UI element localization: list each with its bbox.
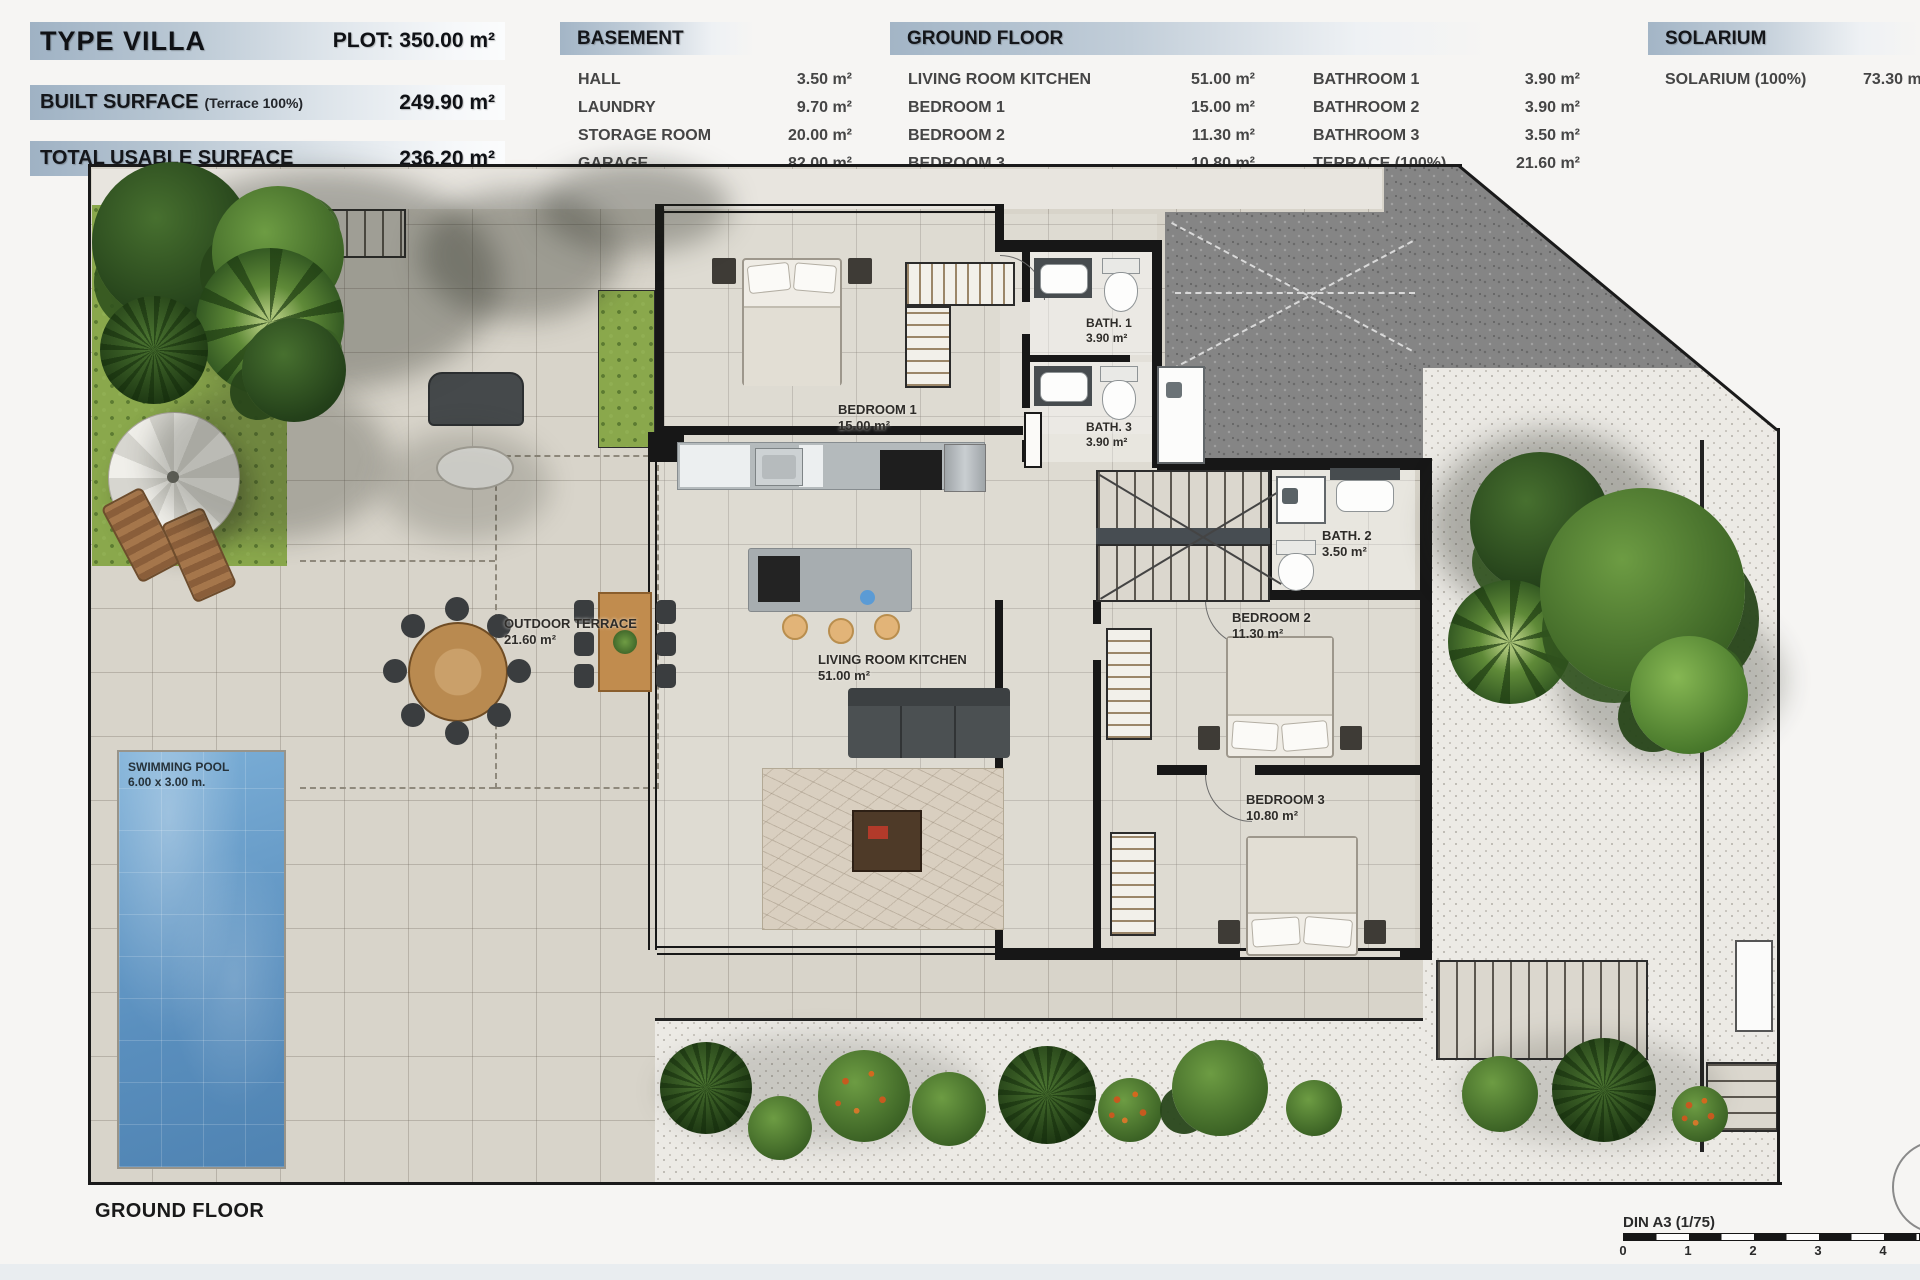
table-row: HALL3.50 m²: [578, 68, 852, 92]
page-bottom-strip: [0, 1264, 1920, 1280]
room-name: OUTDOOR TERRACE: [504, 616, 637, 632]
bush: [1172, 1040, 1268, 1136]
room-name: BEDROOM 2: [1232, 610, 1311, 626]
bush: [998, 1046, 1096, 1144]
dining-chair: [574, 664, 594, 688]
row-label: HALL: [578, 71, 621, 89]
pillow: [1251, 916, 1301, 947]
built-surface-labels: BUILT SURFACE(Terrace 100%): [40, 91, 303, 114]
row-value: 3.90 m²: [1525, 99, 1580, 117]
flowering-bush: [1098, 1078, 1162, 1142]
plan-sheet: { "header": { "type_villa": { "label": "…: [0, 0, 1920, 1280]
bush: [748, 1096, 812, 1160]
scale-tick: 4: [1875, 1243, 1891, 1258]
built-surface-value: 249.90 m²: [399, 91, 495, 115]
bush: [1462, 1056, 1538, 1132]
bar-stool: [782, 614, 808, 640]
solarium-table-header: SOLARIUM: [1648, 22, 1920, 55]
type-villa-bar: TYPE VILLA PLOT: 350.00 m²: [30, 22, 505, 60]
dashed-line: [300, 560, 495, 562]
room-name: BATH. 3: [1086, 420, 1132, 435]
cooktop: [880, 450, 942, 490]
toilet-bowl: [1102, 380, 1136, 420]
bush: [912, 1072, 986, 1146]
staircase-landing: [1096, 528, 1270, 544]
dining-chair: [656, 664, 676, 688]
hedge: [598, 290, 655, 448]
sink-basin: [1040, 372, 1088, 402]
built-surface-label: BUILT SURFACE: [40, 91, 199, 113]
room-area: 11.30 m²: [1232, 626, 1311, 642]
ground-floor-table-header: GROUND FLOOR: [890, 22, 1490, 55]
scale-tick: 3: [1810, 1243, 1826, 1258]
plot-boundary: [88, 1182, 1782, 1185]
pillow: [1231, 720, 1279, 751]
tree: [242, 318, 346, 422]
room-label-bath2: BATH. 23.50 m²: [1322, 528, 1372, 561]
row-value: 15.00 m²: [1191, 99, 1255, 117]
row-value: 11.30 m²: [1192, 127, 1255, 145]
wall: [1157, 765, 1207, 775]
patio-chair: [401, 703, 425, 727]
bed-blanket: [1228, 638, 1332, 716]
room-label-outdoor-terrace: OUTDOOR TERRACE21.60 m²: [504, 616, 637, 649]
room-label-bedroom1: BEDROOM 115.00 m²: [838, 402, 917, 435]
window-glazing: [648, 460, 657, 950]
basement-title: BASEMENT: [577, 28, 684, 50]
wall: [1255, 765, 1420, 775]
room-name: BEDROOM 1: [838, 402, 917, 418]
row-label: LIVING ROOM KITCHEN: [908, 71, 1091, 89]
built-surface-note: (Terrace 100%): [205, 95, 304, 111]
room-name: BEDROOM 3: [1246, 792, 1325, 808]
north-indicator-arc: [1892, 1140, 1920, 1234]
sink-basin: [1336, 480, 1394, 512]
coffee-table: [852, 810, 922, 872]
tree-shadow: [380, 430, 550, 540]
shower: [1157, 366, 1205, 464]
room-name: LIVING ROOM KITCHEN: [818, 652, 967, 668]
plot-boundary: [88, 164, 1462, 167]
pine-tree: [100, 296, 208, 404]
wall: [1093, 660, 1101, 948]
wall: [1022, 334, 1030, 408]
scale-tick: 1: [1680, 1243, 1696, 1258]
tree-shadow: [540, 162, 730, 252]
table-row: BEDROOM 211.30 m²: [908, 124, 1255, 148]
row-value: 21.60 m²: [1516, 155, 1580, 173]
sink-basin: [1040, 264, 1088, 294]
room-label-bedroom2: BEDROOM 211.30 m²: [1232, 610, 1311, 643]
table-row: BEDROOM 115.00 m²: [908, 96, 1255, 120]
room-name: SWIMMING POOL: [128, 760, 229, 775]
row-label: BEDROOM 1: [908, 99, 1005, 117]
sink-bowl: [762, 455, 796, 479]
room-name: BATH. 2: [1322, 528, 1372, 544]
dashed-line: [300, 787, 495, 789]
table-row: SOLARIUM (100%)73.30 m²: [1665, 68, 1920, 92]
nightstand: [1340, 726, 1362, 750]
basement-table-header: BASEMENT: [560, 22, 755, 55]
sofa-seat: [848, 706, 1010, 758]
fridge: [944, 444, 986, 492]
row-label: BEDROOM 2: [908, 127, 1005, 145]
row-label: STORAGE ROOM: [578, 127, 711, 145]
row-label: LAUNDRY: [578, 99, 656, 117]
driveway-wedge: [1384, 166, 1704, 370]
driveway-marking: [1175, 292, 1415, 294]
walkway-edge: [655, 1018, 1423, 1021]
sofa-back: [848, 688, 1010, 706]
solarium-title: SOLARIUM: [1665, 28, 1766, 50]
dining-chair: [656, 632, 676, 656]
table-row: STORAGE ROOM20.00 m²: [578, 124, 852, 148]
island-hob: [758, 556, 800, 602]
row-label: BATHROOM 3: [1313, 127, 1419, 145]
patio-chair: [487, 703, 511, 727]
plot-value: PLOT: 350.00 m²: [333, 29, 495, 53]
scale-label: DIN A3 (1/75): [1623, 1214, 1715, 1231]
nightstand: [1364, 920, 1386, 944]
row-value: 3.90 m²: [1525, 71, 1580, 89]
bed-blanket: [744, 306, 840, 386]
patio-chair: [383, 659, 407, 683]
row-value: 51.00 m²: [1191, 71, 1255, 89]
flowering-bush: [1672, 1086, 1728, 1142]
shower-head: [1166, 382, 1182, 398]
shower-head: [1282, 488, 1298, 504]
room-label-pool: SWIMMING POOL6.00 x 3.00 m.: [128, 760, 229, 790]
ac-unit: [1735, 940, 1773, 1032]
row-label: BATHROOM 1: [1313, 71, 1419, 89]
wardrobe: [1110, 832, 1156, 936]
scale-tick: 2: [1745, 1243, 1761, 1258]
wall: [1000, 240, 1162, 252]
bar-stool: [828, 618, 854, 644]
nightstand: [712, 258, 736, 284]
pillow: [1281, 720, 1329, 752]
room-area: 3.50 m²: [1322, 544, 1372, 560]
room-label-bath1: BATH. 13.90 m²: [1086, 316, 1132, 346]
sheet-title: GROUND FLOOR: [95, 1200, 264, 1223]
nightstand: [848, 258, 872, 284]
bed-blanket: [1248, 838, 1356, 914]
room-area: 3.90 m²: [1086, 435, 1132, 450]
door-leaf: [1024, 412, 1042, 468]
room-area: 51.00 m²: [818, 668, 967, 684]
outdoor-loveseat: [428, 372, 524, 426]
plot-boundary: [1777, 428, 1780, 1185]
room-label-living: LIVING ROOM KITCHEN51.00 m²: [818, 652, 967, 685]
ground-floor-title: GROUND FLOOR: [907, 28, 1063, 50]
bush: [1286, 1080, 1342, 1136]
row-label: BATHROOM 2: [1313, 99, 1419, 117]
pillow: [1303, 916, 1353, 948]
wall: [1255, 590, 1420, 600]
flowering-bush: [818, 1050, 910, 1142]
bush: [660, 1042, 752, 1134]
staircase-lower-flight: [1096, 544, 1270, 602]
room-area: 3.90 m²: [1086, 331, 1132, 346]
nightstand: [1218, 920, 1240, 944]
toilet-bowl: [1104, 272, 1138, 312]
row-label: SOLARIUM (100%): [1665, 71, 1806, 89]
table-row: BATHROOM 23.90 m²: [1313, 96, 1580, 120]
room-area: 21.60 m²: [504, 632, 637, 648]
coffee-table-books: [868, 826, 888, 839]
staircase-upper-flight: [1096, 470, 1270, 530]
bath-vanity: [1330, 468, 1400, 480]
wall: [1093, 600, 1101, 624]
room-label-bath3: BATH. 33.90 m²: [1086, 420, 1132, 450]
room-name: BATH. 1: [1086, 316, 1132, 331]
table-row: BATHROOM 13.90 m²: [1313, 68, 1580, 92]
wardrobe: [905, 262, 1015, 306]
room-label-bedroom3: BEDROOM 310.80 m²: [1246, 792, 1325, 825]
dining-chair: [656, 600, 676, 624]
wardrobe: [905, 306, 951, 388]
type-villa-label: TYPE VILLA: [40, 26, 206, 57]
built-surface-bar: BUILT SURFACE(Terrace 100%) 249.90 m²: [30, 85, 505, 120]
patio-chair: [401, 614, 425, 638]
bar-stool: [874, 614, 900, 640]
pillow: [793, 262, 837, 294]
tree: [1630, 636, 1748, 754]
toilet-bowl: [1278, 553, 1314, 591]
row-value: 20.00 m²: [788, 127, 852, 145]
scale-tick: 0: [1615, 1243, 1631, 1258]
bush: [1552, 1038, 1656, 1142]
patio-chair: [507, 659, 531, 683]
row-value: 9.70 m²: [797, 99, 852, 117]
patio-chair: [445, 721, 469, 745]
table-row: LAUNDRY9.70 m²: [578, 96, 852, 120]
room-area: 15.00 m²: [838, 418, 917, 434]
wardrobe: [1106, 628, 1152, 740]
kitchen-cabinet: [680, 445, 750, 487]
swimming-pool: [117, 750, 286, 1169]
row-value: 3.50 m²: [797, 71, 852, 89]
room-area: 10.80 m²: [1246, 808, 1325, 824]
row-value: 3.50 m²: [1525, 127, 1580, 145]
table-row: LIVING ROOM KITCHEN51.00 m²: [908, 68, 1255, 92]
pillow: [747, 262, 792, 294]
wall: [1030, 355, 1130, 362]
nightstand: [1198, 726, 1220, 750]
window-glazing: [657, 946, 1000, 955]
scale-bar: [1623, 1233, 1920, 1241]
room-area: 6.00 x 3.00 m.: [128, 775, 229, 790]
plot-boundary: [88, 164, 91, 1185]
row-value: 73.30 m²: [1863, 71, 1920, 89]
island-sink: [860, 590, 875, 605]
table-row: BATHROOM 33.50 m²: [1313, 124, 1580, 148]
patio-chair: [445, 597, 469, 621]
